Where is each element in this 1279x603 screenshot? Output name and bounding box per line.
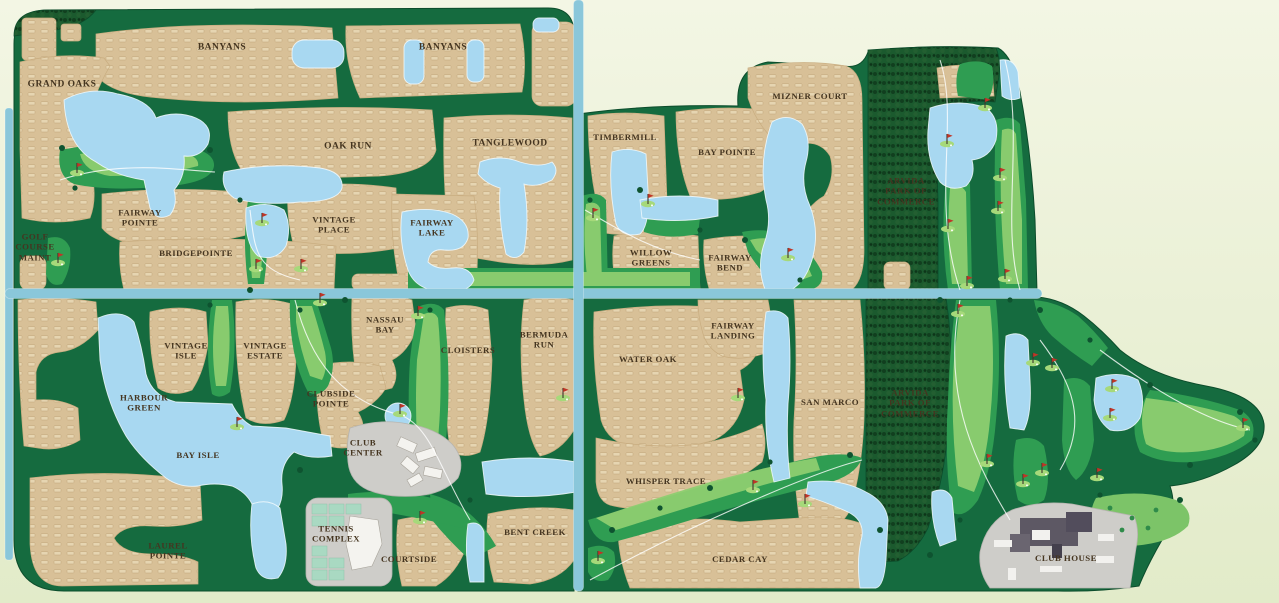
label-grand-oaks: GRAND OAKS <box>28 79 97 90</box>
label-tanglewood: TANGLEWOOD <box>472 138 547 149</box>
label-banyans-east: BANYANS <box>419 42 467 53</box>
label-oak-run: OAK RUN <box>324 141 372 152</box>
label-club-center: CLUB CENTER <box>343 438 382 459</box>
label-fairway-lake: FAIRWAY LAKE <box>410 218 453 239</box>
label-fairway-bend: FAIRWAY BEND <box>708 253 751 274</box>
label-bay-pointe: BAY POINTE <box>698 147 756 157</box>
map-labels: BANYANSBANYANSGRAND OAKSOAK RUNTANGLEWOO… <box>0 0 1279 603</box>
label-arvida-park-south: ARVIDA PARK OF COMMERCE <box>881 387 939 418</box>
label-fairway-pointe: FAIRWAY POINTE <box>118 208 161 229</box>
label-laurel-pointe: LAUREL POINTE <box>148 541 187 562</box>
label-san-marco: SAN MARCO <box>801 397 859 407</box>
label-club-house: CLUB HOUSE <box>1035 553 1097 563</box>
label-vintage-isle: VINTAGE ISLE <box>164 341 208 362</box>
label-bermuda-run: BERMUDA RUN <box>520 330 569 351</box>
label-cedar-cay: CEDAR CAY <box>712 554 768 564</box>
label-willow-greens: WILLOW GREENS <box>630 248 672 269</box>
label-clubside-pointe: CLUBSIDE POINTE <box>307 389 356 410</box>
label-courtside: COURTSIDE <box>381 554 437 564</box>
label-vintage-estate: VINTAGE ESTATE <box>243 341 287 362</box>
label-arvida-park-north: ARVIDA PARK OF COMMERCE <box>877 175 935 206</box>
label-bridgepointe: BRIDGEPOINTE <box>159 248 233 258</box>
label-banyans-west: BANYANS <box>198 42 246 53</box>
label-fairway-landing: FAIRWAY LANDING <box>711 321 756 342</box>
label-whisper-trace: WHISPER TRACE <box>626 476 706 486</box>
label-tennis-complex: TENNIS COMPLEX <box>312 524 360 545</box>
label-nassau-bay: NASSAU BAY <box>366 315 404 336</box>
site-map: BANYANSBANYANSGRAND OAKSOAK RUNTANGLEWOO… <box>0 0 1279 603</box>
label-water-oak: WATER OAK <box>619 354 677 364</box>
label-bent-creek: BENT CREEK <box>504 527 566 537</box>
label-bay-isle: BAY ISLE <box>176 450 219 460</box>
label-vintage-place: VINTAGE PLACE <box>312 215 356 236</box>
label-timbermill: TIMBERMILL <box>593 132 657 142</box>
label-harbour-green: HARBOUR GREEN <box>120 393 168 414</box>
label-golf-course-maint: GOLF COURSE MAINT <box>15 231 54 262</box>
label-mizner-court: MIZNER COURT <box>772 91 847 101</box>
label-cloisters: CLOISTERS <box>441 345 495 355</box>
